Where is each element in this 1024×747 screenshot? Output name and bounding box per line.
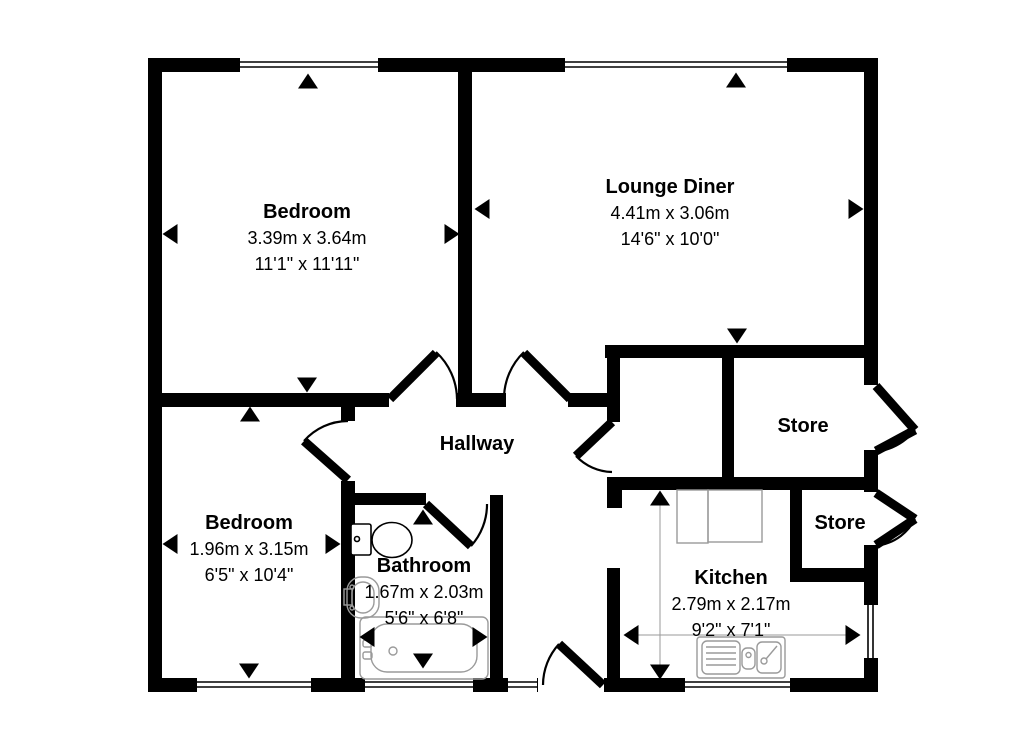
room-name: Lounge Diner bbox=[606, 174, 735, 200]
dimension-arrow-down bbox=[413, 654, 433, 669]
room-dims-imperial: 14'6" x 10'0" bbox=[606, 226, 735, 252]
door-cupboard bbox=[576, 422, 612, 472]
room-dims-imperial: 5'6" x 6'8" bbox=[364, 605, 483, 631]
room-label-store-2: Store bbox=[814, 510, 865, 536]
floor-plan-drawing bbox=[0, 0, 1024, 747]
room-dims-imperial: 6'5" x 10'4" bbox=[189, 562, 308, 588]
room-label-lounge-diner: Lounge Diner 4.41m x 3.06m 14'6" x 10'0" bbox=[606, 174, 735, 252]
kitchen-counter bbox=[677, 490, 762, 543]
dimension-arrow-left bbox=[163, 534, 178, 554]
room-label-store-1: Store bbox=[777, 413, 828, 439]
room-name: Bedroom bbox=[189, 510, 308, 536]
room-label-hallway: Hallway bbox=[440, 431, 514, 457]
door-bedroom-1 bbox=[390, 352, 457, 399]
room-dims-imperial: 11'1" x 11'11" bbox=[247, 251, 366, 277]
window bbox=[864, 605, 879, 658]
room-dims-metric: 3.39m x 3.64m bbox=[247, 225, 366, 251]
dimension-arrow-left bbox=[624, 625, 639, 645]
room-name: Kitchen bbox=[671, 565, 790, 591]
dimension-arrow-down bbox=[297, 378, 317, 393]
door-entrance bbox=[543, 644, 603, 685]
dimension-arrow-down bbox=[239, 664, 259, 679]
window bbox=[565, 58, 787, 73]
door-store-1 bbox=[876, 386, 915, 451]
door-bedroom-2 bbox=[304, 421, 348, 480]
room-label-bathroom: Bathroom 1.67m x 2.03m 5'6" x 6'8" bbox=[364, 553, 483, 631]
room-name: Store bbox=[777, 413, 828, 439]
room-dims-imperial: 9'2" x 7'1" bbox=[671, 617, 790, 643]
dimension-arrow-down bbox=[727, 329, 747, 344]
room-name: Hallway bbox=[440, 431, 514, 457]
room-label-bedroom-1: Bedroom 3.39m x 3.64m 11'1" x 11'11" bbox=[247, 199, 366, 277]
dimension-arrow-left bbox=[475, 199, 490, 219]
room-dims-metric: 2.79m x 2.17m bbox=[671, 591, 790, 617]
window bbox=[240, 58, 378, 73]
window bbox=[197, 678, 311, 693]
room-name: Bathroom bbox=[364, 553, 483, 579]
dimension-arrow-right bbox=[846, 625, 861, 645]
floor-plan: Bedroom 3.39m x 3.64m 11'1" x 11'11" Lou… bbox=[0, 0, 1024, 747]
dimension-arrow-up bbox=[650, 491, 670, 506]
room-dims-metric: 1.67m x 2.03m bbox=[364, 579, 483, 605]
dimension-arrow-down bbox=[650, 665, 670, 680]
window bbox=[365, 678, 473, 693]
kitchen-sink-icon bbox=[697, 637, 785, 678]
door-lounge bbox=[504, 352, 570, 399]
dimension-arrow-right bbox=[849, 199, 864, 219]
dimension-arrow-right bbox=[326, 534, 341, 554]
dimension-arrow-left bbox=[163, 224, 178, 244]
room-name: Store bbox=[814, 510, 865, 536]
dimension-arrow-up bbox=[298, 74, 318, 89]
room-label-bedroom-2: Bedroom 1.96m x 3.15m 6'5" x 10'4" bbox=[189, 510, 308, 588]
dimension-arrow-up bbox=[240, 407, 260, 422]
door-bathroom bbox=[426, 504, 487, 546]
room-dims-metric: 4.41m x 3.06m bbox=[606, 200, 735, 226]
dimension-arrow-up bbox=[726, 73, 746, 88]
room-label-kitchen: Kitchen 2.79m x 2.17m 9'2" x 7'1" bbox=[671, 565, 790, 643]
window bbox=[508, 678, 537, 693]
room-dims-metric: 1.96m x 3.15m bbox=[189, 536, 308, 562]
room-name: Bedroom bbox=[247, 199, 366, 225]
window bbox=[685, 678, 790, 693]
door-store-2 bbox=[876, 493, 915, 545]
dimension-arrow-right bbox=[445, 224, 460, 244]
